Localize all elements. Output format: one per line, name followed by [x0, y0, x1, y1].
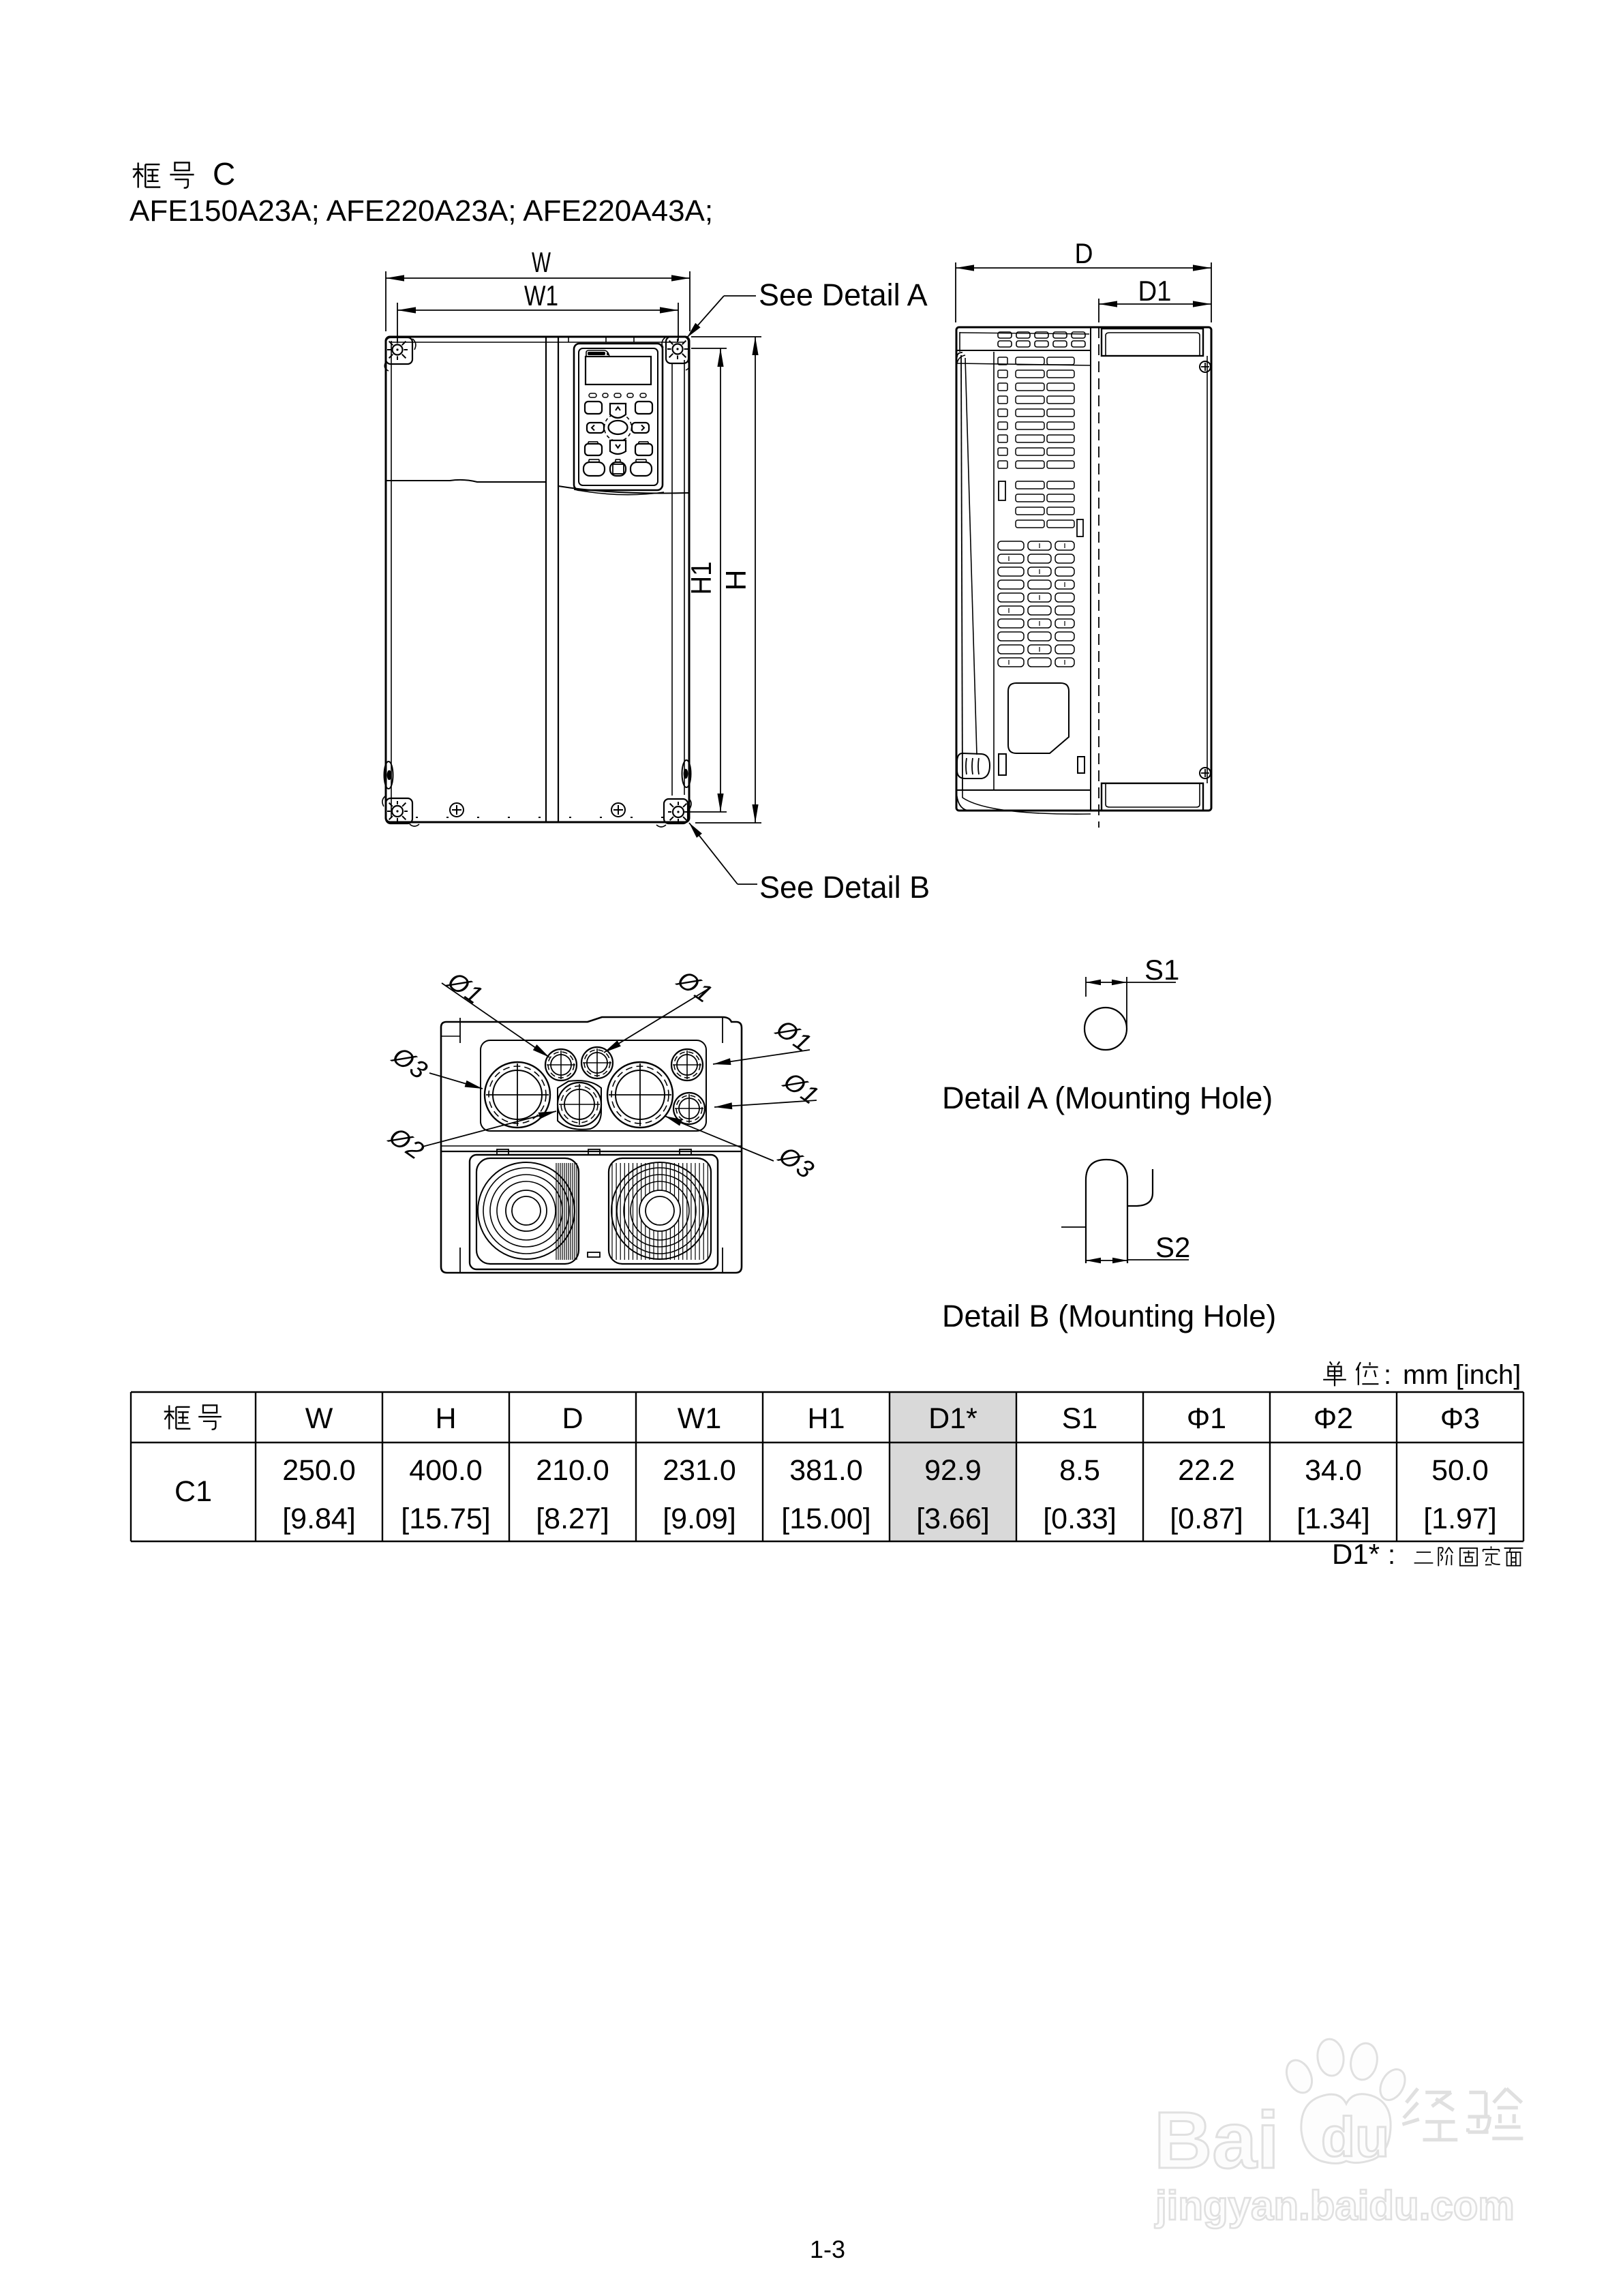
svg-text:[1.97]: [1.97] [1423, 1502, 1497, 1535]
svg-text:22.2: 22.2 [1178, 1454, 1235, 1487]
svg-text:Φ3: Φ3 [1440, 1402, 1480, 1435]
svg-text:8.5: 8.5 [1059, 1454, 1100, 1487]
svg-text::: : [1384, 1360, 1391, 1390]
svg-text:[15.75]: [15.75] [401, 1502, 491, 1535]
svg-text:W1: W1 [524, 280, 558, 312]
svg-text:C1: C1 [175, 1475, 212, 1508]
svg-text:D1: D1 [1138, 275, 1172, 307]
svg-text:S1: S1 [1144, 954, 1179, 986]
svg-text:50.0: 50.0 [1431, 1454, 1489, 1487]
svg-text:[15.00]: [15.00] [781, 1502, 871, 1535]
svg-text:C: C [213, 156, 235, 192]
svg-text:Φ1: Φ1 [1187, 1402, 1226, 1435]
svg-text:H: H [435, 1402, 456, 1435]
svg-text:S1: S1 [1062, 1402, 1098, 1435]
svg-text:[0.33]: [0.33] [1043, 1502, 1117, 1535]
svg-text:[8.27]: [8.27] [536, 1502, 609, 1535]
svg-text:H1: H1 [808, 1402, 845, 1435]
svg-text:AFE150A23A; AFE220A23A; AFE220: AFE150A23A; AFE220A23A; AFE220A43A; [130, 194, 713, 228]
svg-text::: : [1388, 1540, 1395, 1570]
svg-text:D1*: D1* [1332, 1538, 1380, 1570]
svg-text:1-3: 1-3 [810, 2235, 845, 2263]
svg-text:Bai: Bai [1154, 2096, 1279, 2186]
svg-text:H: H [720, 570, 752, 591]
svg-text:mm [inch]: mm [inch] [1403, 1360, 1521, 1390]
svg-text:Detail A (Mounting Hole): Detail A (Mounting Hole) [942, 1081, 1273, 1115]
svg-text:Detail B (Mounting Hole): Detail B (Mounting Hole) [942, 1299, 1276, 1333]
svg-text:[3.66]: [3.66] [916, 1502, 990, 1535]
svg-text:W: W [305, 1402, 333, 1435]
svg-text:W1: W1 [678, 1402, 722, 1435]
svg-text:D: D [562, 1402, 583, 1435]
svg-text:34.0: 34.0 [1305, 1454, 1362, 1487]
svg-text:231.0: 231.0 [663, 1454, 736, 1487]
svg-text:400.0: 400.0 [409, 1454, 483, 1487]
svg-text:[1.34]: [1.34] [1296, 1502, 1370, 1535]
svg-text:D: D [1075, 237, 1093, 269]
svg-text:[9.09]: [9.09] [663, 1502, 736, 1535]
svg-text:[9.84]: [9.84] [282, 1502, 356, 1535]
svg-text:92.9: 92.9 [924, 1454, 982, 1487]
svg-text:381.0: 381.0 [789, 1454, 863, 1487]
svg-text:210.0: 210.0 [536, 1454, 609, 1487]
svg-text:H1: H1 [685, 562, 717, 595]
svg-text:du: du [1321, 2106, 1389, 2169]
svg-text:Φ2: Φ2 [1314, 1402, 1353, 1435]
svg-text:[0.87]: [0.87] [1170, 1502, 1243, 1535]
svg-text:W: W [532, 246, 551, 278]
svg-text:See Detail A: See Detail A [759, 277, 928, 312]
svg-text:S2: S2 [1155, 1231, 1190, 1263]
svg-text:250.0: 250.0 [282, 1454, 356, 1487]
svg-text:See Detail B: See Detail B [759, 870, 930, 905]
svg-text:D1*: D1* [928, 1402, 977, 1435]
svg-text:jingyan.baidu.com: jingyan.baidu.com [1155, 2183, 1515, 2229]
